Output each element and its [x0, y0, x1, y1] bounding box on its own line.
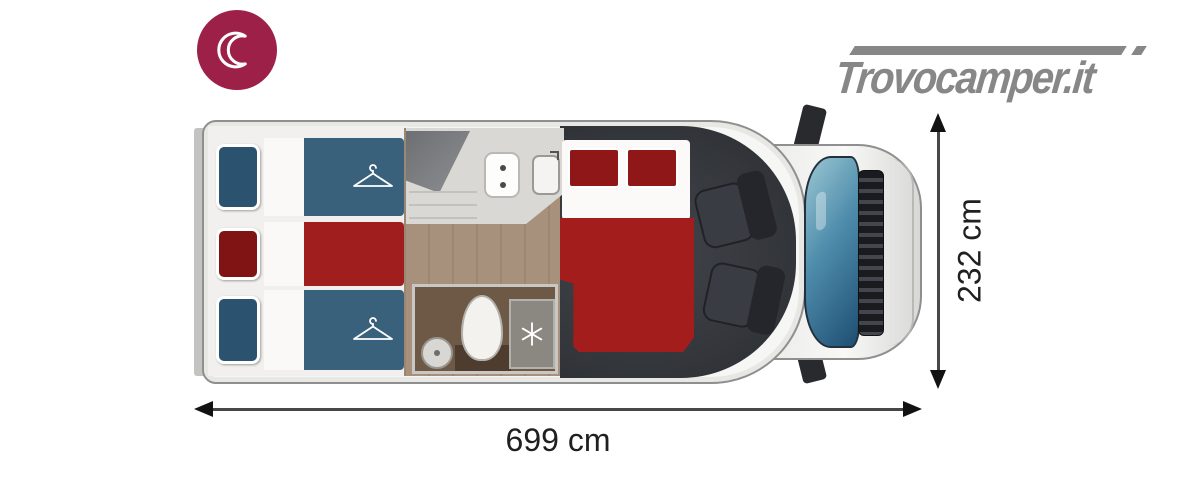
washbasin-icon — [421, 337, 453, 369]
hood-front-line — [886, 158, 914, 346]
double-bed-pillow — [568, 148, 620, 188]
bunk-pillow — [216, 228, 260, 280]
double-bed-duvet — [560, 218, 694, 352]
kitchen-sink-icon — [532, 155, 560, 195]
bunk-bed-top — [210, 138, 404, 216]
arrow-down-icon — [930, 370, 946, 389]
arrow-left-icon — [194, 401, 213, 417]
arrow-up-icon — [930, 113, 946, 132]
length-dimension-line — [200, 408, 916, 411]
double-bed-pillow — [626, 148, 678, 188]
kitchen-block — [406, 128, 564, 224]
shower-tray — [509, 299, 555, 369]
bunk-sheet — [264, 290, 306, 370]
toilet-icon — [461, 295, 503, 361]
hanger-icon — [350, 164, 396, 191]
bunk-bed-middle — [210, 222, 404, 286]
stove-burner — [500, 182, 506, 188]
bunk-blanket — [304, 138, 404, 216]
snowflake-icon — [519, 321, 545, 347]
width-dimension-line — [937, 120, 940, 382]
night-layout-badge — [197, 10, 277, 90]
length-dimension-label: 699 cm — [418, 422, 698, 459]
logo-text: Trovocamper.it — [833, 52, 1138, 104]
width-dimension-label: 232 cm — [948, 118, 992, 384]
bunk-blanket — [304, 222, 404, 286]
stove-burner — [500, 165, 506, 171]
hanger-icon — [350, 317, 396, 344]
bunk-pillow — [216, 144, 260, 210]
cab-seat-driver — [699, 253, 793, 344]
bunk-sheet — [264, 222, 306, 286]
windshield-glare — [816, 190, 826, 231]
moon-icon — [210, 23, 264, 77]
floorplan-image: Trovocamper.it — [0, 0, 1200, 488]
trovocamper-logo: Trovocamper.it — [838, 30, 1178, 104]
stove-icon — [484, 152, 520, 198]
bunk-bed-bottom — [210, 290, 404, 370]
double-bed — [560, 136, 694, 352]
windshield — [804, 156, 860, 348]
bathroom-block — [412, 284, 558, 374]
arrow-right-icon — [903, 401, 922, 417]
washbasin-drain — [434, 350, 440, 356]
bunk-blanket — [304, 290, 404, 370]
bunk-sheet — [264, 138, 306, 216]
windshield-cowl — [858, 170, 884, 336]
kitchen-tap — [550, 151, 559, 160]
bunk-pillow — [216, 296, 260, 364]
kitchen-drawers — [409, 180, 477, 220]
